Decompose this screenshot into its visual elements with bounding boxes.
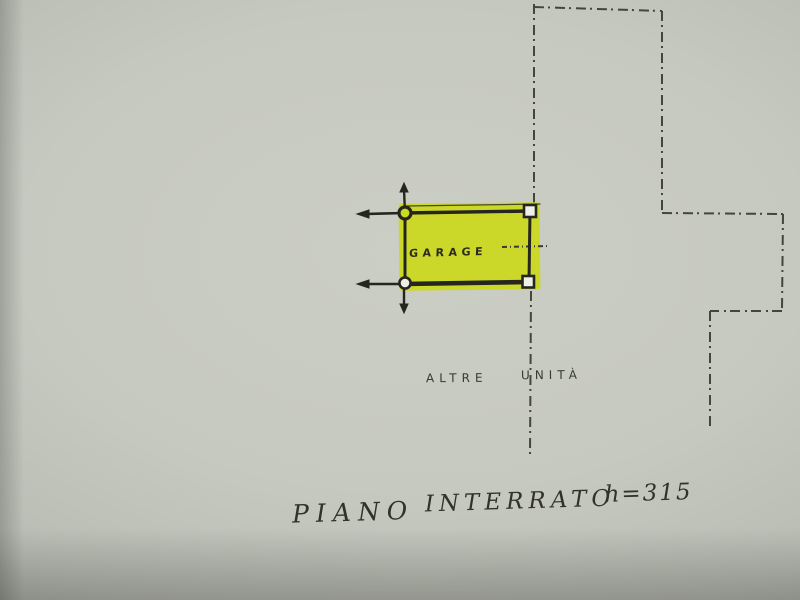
garage-wall-top [403,211,532,213]
corner-marker-bottom-left-circle [399,277,410,288]
boundary-vertical-right [782,214,783,311]
garage-wall-right [529,211,530,282]
cut-mark-up [400,183,408,192]
cadastral-plan-photo: GARAGE ALTRE UNITÀ PIANO INTERRATO h=315 [0,0,800,600]
cut-mark-left-bottom [357,280,369,288]
cut-mark-left-top [357,210,369,218]
other-units-dashed-boundary [530,4,783,456]
altre-unita-label-right: UNITÀ [521,368,582,383]
boundary-horizontal-top [534,7,662,11]
altre-unita-label-left: ALTRE [426,371,488,386]
corner-marker-top-right-square [524,205,536,217]
corner-marker-bottom-right-square [523,276,535,288]
garage-room-label: GARAGE [409,245,488,260]
garage-wall-bottom [404,282,530,284]
cut-mark-down [400,304,408,313]
boundary-horizontal-right [662,213,783,214]
caption-height-note: h=315 [604,479,693,508]
caption-floor-word: PIANO [292,496,415,529]
corner-marker-top-left-circle [399,207,411,219]
